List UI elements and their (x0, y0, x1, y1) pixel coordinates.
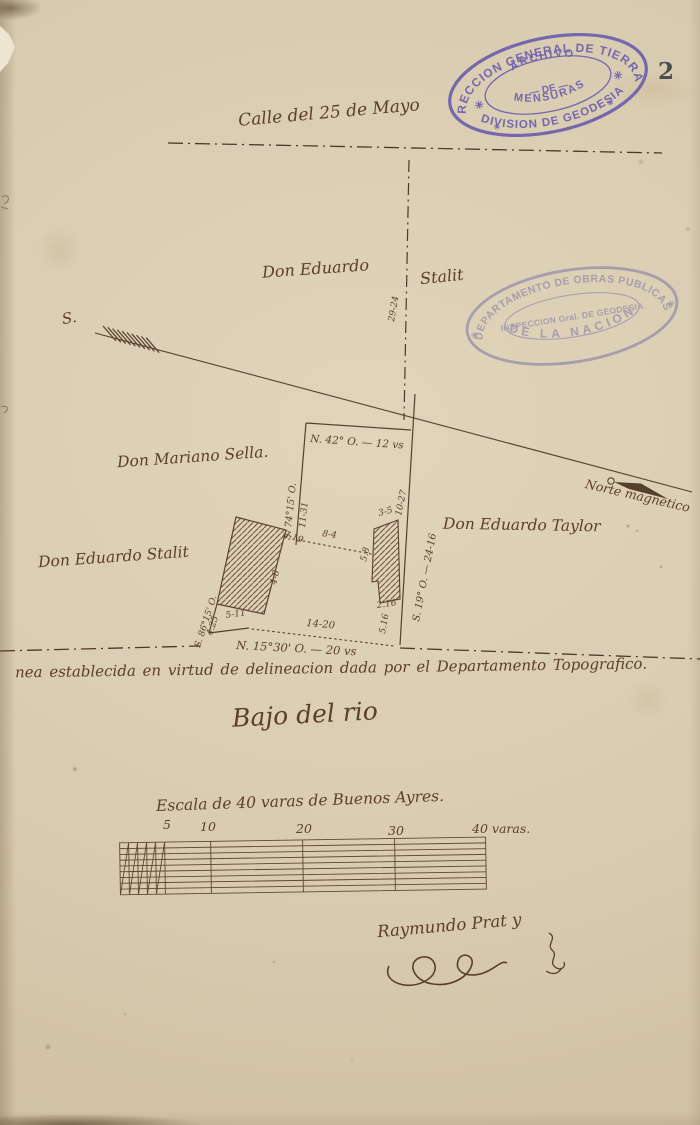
stamp2-star-right: ✳ (667, 299, 676, 310)
stamp1-mensuras-text: MENSURAS (511, 77, 589, 111)
meas-bottom-span: 14-20 (306, 618, 336, 632)
arrow-fletching (103, 326, 159, 353)
signature-monogram (546, 933, 564, 973)
lot-top-line (306, 423, 411, 430)
stamp1-star-left: ✳ (474, 99, 486, 113)
meas-west-length: 11-31 (298, 501, 311, 528)
meas-east-bearing: S. 19° O. — 24-16 (411, 532, 439, 623)
signature-flourish (388, 955, 507, 985)
meas-top-bearing: N. 42° O. — 12 vs (309, 433, 405, 452)
hatched-building-west (217, 517, 286, 614)
owner-east-label: Don Eduardo Taylor (443, 516, 601, 536)
meas-bottom-left: 5-11 (225, 608, 246, 621)
meas-small-side: 5.8 (359, 546, 372, 563)
meas-frontage-depth: 29-24 (387, 295, 402, 324)
scale-tick-10: 10 (200, 820, 216, 834)
lot-division-dashdot-line (404, 160, 409, 420)
meas-south-bearing: N. 15°30' O. — 20 vs (235, 638, 357, 658)
scale-tick-40: 40 varas. (472, 822, 530, 836)
meas-east-upper: 10-27 (394, 489, 409, 517)
scale-tick-5: 5 (163, 818, 171, 832)
meas-parcel-side: 4-8 (269, 569, 282, 587)
scale-bar (120, 837, 487, 895)
meas-east-lower: 5.16 (378, 613, 391, 635)
hatched-building-east (372, 520, 400, 603)
south-compass-label: S. (61, 309, 78, 328)
meas-gap: 2-19 (281, 529, 305, 546)
dotted-span-8-4 (298, 540, 371, 554)
margin-ink-marks (1, 196, 8, 413)
stamp1-star-right: ✳ (613, 69, 625, 83)
stamp2-star-left: ✳ (470, 330, 479, 341)
survey-document-page: N. 42° O. — 12 vs S. 74°15' O. 11-31 29-… (0, 0, 700, 1125)
scale-tick-20: 20 (296, 822, 312, 836)
svg-text:MENSURAS: MENSURAS (511, 77, 589, 111)
meas-mid-span: 8-4 (322, 529, 338, 541)
stamp-obras-publicas: DEPARTAMENTO DE OBRAS PUBLICAS INSPECCIO… (452, 258, 692, 374)
meas-small-top: 3-5 (377, 506, 394, 519)
stamp-archivo-mensuras: DIRECCION GENERAL DE TIERRAS DIVISION DE… (430, 24, 666, 146)
meas-small-bottom: 2.16 (375, 598, 397, 611)
scale-tick-30: 30 (388, 824, 404, 838)
south-boundary-line-left (0, 646, 200, 651)
